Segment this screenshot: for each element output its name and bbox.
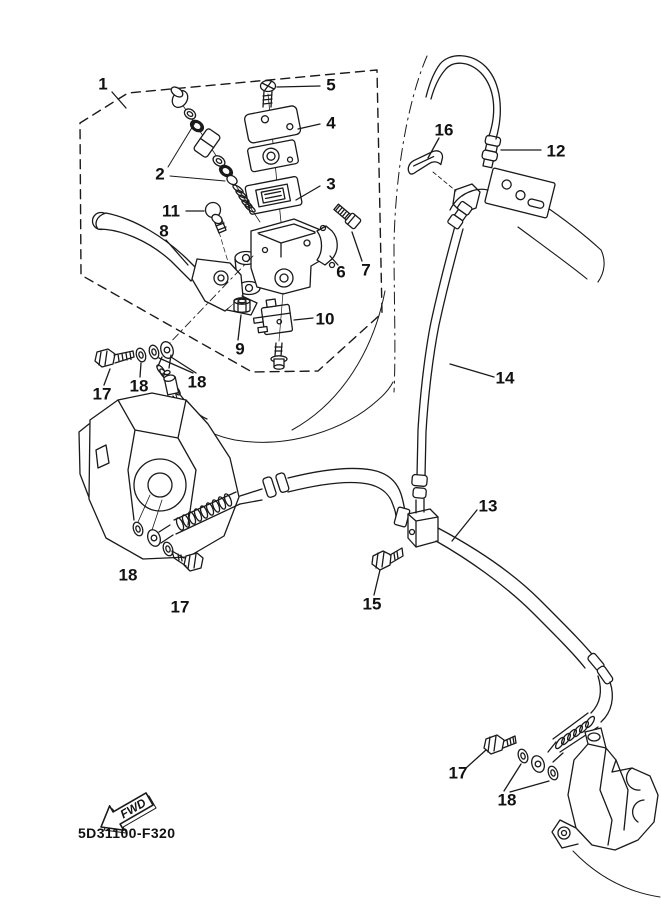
hose-clamp-16 (405, 149, 445, 176)
main-hose-14 (412, 226, 463, 513)
junction-block (447, 184, 488, 230)
switch-screw (271, 343, 287, 369)
callout-16: 16 (435, 121, 454, 140)
bleed-screw (162, 369, 178, 395)
washer-master-a (135, 347, 148, 363)
leader-14 (450, 364, 494, 377)
callout-7: 7 (361, 261, 370, 280)
clamp-bolt (332, 202, 361, 229)
leader-1 (112, 92, 126, 108)
handlebar-lines (518, 204, 604, 282)
t-joint-block (408, 509, 438, 547)
callout-6: 6 (336, 263, 345, 282)
washer-right-a (516, 748, 529, 764)
leader-10 (294, 318, 313, 320)
callout-5: 5 (326, 76, 335, 95)
callout-1: 1 (98, 75, 107, 94)
leader-5 (277, 86, 320, 87)
master-cylinder-body (235, 219, 323, 295)
leader-15 (374, 570, 380, 595)
callout-18-left: 18 (119, 566, 138, 585)
callout-14: 14 (496, 369, 515, 388)
callout-11: 11 (162, 202, 180, 221)
clamp-16-assembly-line (433, 172, 456, 191)
callout-17-master: 17 (93, 385, 112, 404)
callout-3: 3 (326, 175, 335, 194)
parts-diagram-canvas: FWD 5D31100-F320 1 2 3 4 5 6 7 8 9 10 11… (0, 0, 661, 913)
right-hose-13 (436, 528, 614, 762)
callout-9: 9 (235, 340, 244, 359)
washer-right-b (546, 765, 559, 781)
brake-lever (93, 213, 258, 316)
piston-kit (168, 85, 260, 222)
handlebar-bracket (485, 168, 556, 218)
callout-18-master-a: 18 (130, 377, 149, 396)
lever-pivot-bolt (206, 203, 227, 234)
hose-banjo-right (529, 754, 546, 774)
leader-7 (352, 232, 362, 261)
callout-12: 12 (547, 142, 566, 161)
callout-15: 15 (363, 595, 382, 614)
callout-10: 10 (316, 310, 335, 329)
callout-18-right: 18 (498, 791, 517, 810)
callout-8: 8 (159, 222, 168, 241)
callout-2: 2 (155, 165, 164, 184)
callout-13: 13 (479, 497, 498, 516)
callout-17-left: 17 (171, 598, 190, 617)
hose-fitting-12 (480, 135, 501, 168)
parts-diagram-page: FWD 5D31100-F320 1 2 3 4 5 6 7 8 9 10 11… (0, 0, 661, 913)
reservoir-cap (244, 105, 302, 144)
callout-17-right: 17 (449, 764, 468, 783)
part-code: 5D31100-F320 (78, 825, 175, 841)
t-joint-bolt (372, 548, 403, 570)
leader-13 (452, 510, 477, 541)
banjo-bolt-right (484, 735, 516, 754)
banjo-bolt-master (95, 349, 134, 367)
leader-18-master-a (140, 363, 141, 377)
diaphragm (245, 176, 303, 215)
callout-4: 4 (326, 114, 336, 133)
leader-17-right (466, 750, 486, 768)
callout-18-master-b: 18 (188, 373, 207, 392)
lever-nut (234, 298, 250, 312)
leader-9 (238, 315, 241, 340)
leader-4 (298, 124, 320, 129)
leader-17-master (104, 369, 110, 385)
diaphragm-plate (247, 139, 299, 172)
